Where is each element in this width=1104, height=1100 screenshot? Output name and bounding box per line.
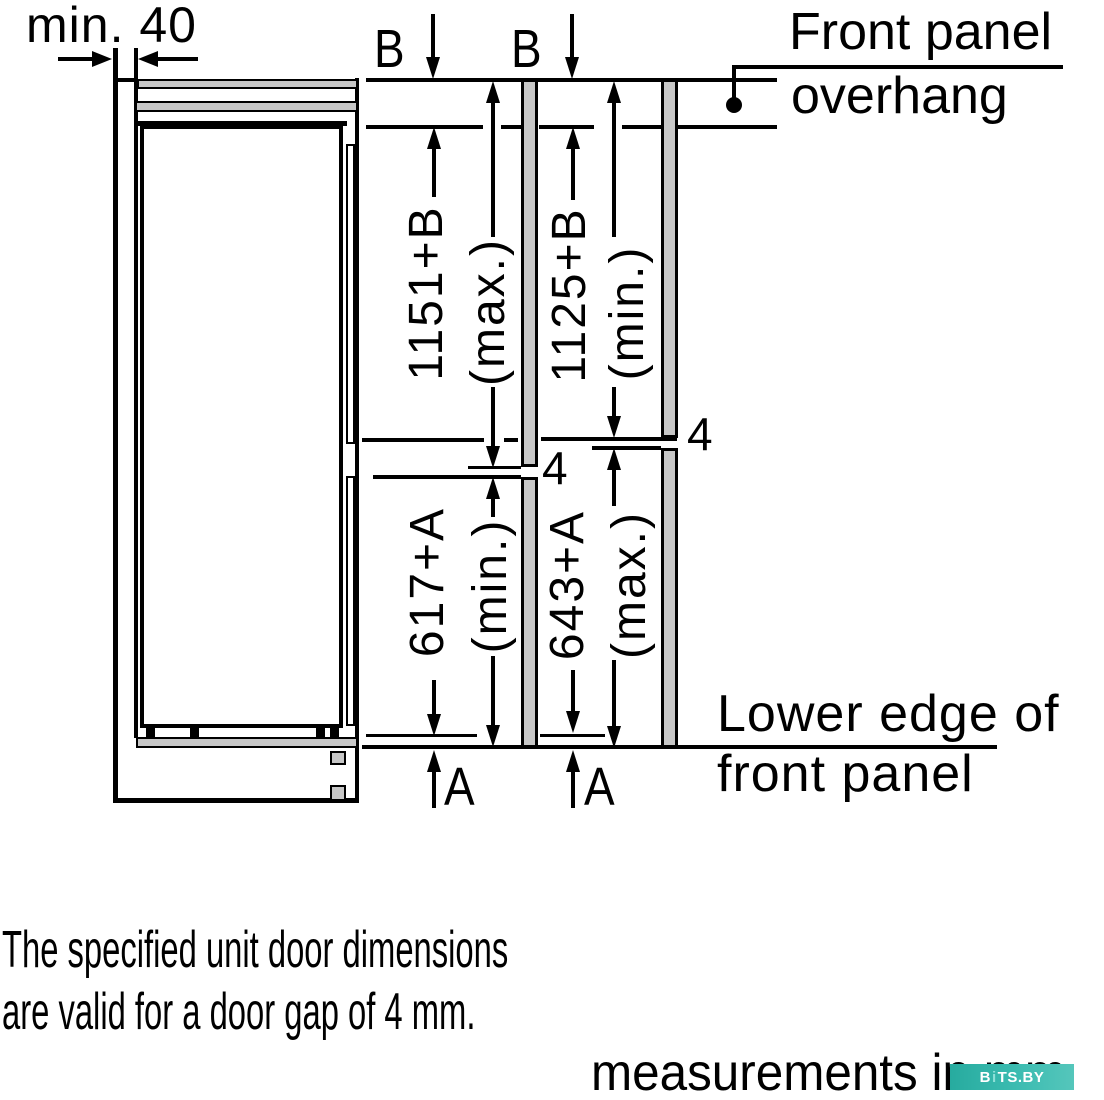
niche-top-line-seg2 <box>501 125 521 129</box>
lower-door-min-value: 617+A <box>404 507 452 657</box>
bottom-vent-grille <box>136 737 358 748</box>
watermark-badge: BiTS.BY <box>950 1064 1074 1090</box>
appliance-door-split-line-seg1 <box>362 438 484 442</box>
lower-door-max-qualifier: (max.) <box>606 511 654 659</box>
min-clearance-arrow-shaft-right <box>158 57 198 61</box>
footnote-line1: The specified unit door dimensions <box>2 924 508 976</box>
watermark-text-part1: B <box>980 1069 991 1086</box>
footnote-line2: are valid for a door gap of 4 mm. <box>2 986 475 1038</box>
door-hinge-strip-lower <box>346 476 355 726</box>
min-clearance-right-arrowhead-icon <box>92 51 112 67</box>
a-arrow-shaft-left <box>432 770 436 808</box>
niche-top-line-seg4 <box>622 125 777 129</box>
dim2-lower-shaft-2 <box>612 660 616 726</box>
appliance-bottom-reference-seg2 <box>540 734 605 737</box>
watermark-text-accent: i <box>991 1069 998 1086</box>
overhang-b-label-left: B <box>374 22 405 76</box>
dim1-inner-down-arrowhead-icon <box>427 714 441 736</box>
b-arrow-shaft-left <box>431 14 435 59</box>
adjustable-foot-lower <box>330 785 346 801</box>
lower-door-min-qualifier: (min.) <box>467 519 515 654</box>
lower-edge-callout-line1: Lower edge of <box>717 688 1060 740</box>
appliance-bottom-reference-seg1 <box>366 734 477 737</box>
dim1-lower-shaft-1 <box>491 497 495 517</box>
min-clearance-arrow-shaft-left <box>58 57 94 61</box>
dim2-inner-down-arrowhead-icon <box>566 711 580 733</box>
dim1-lower-shaft-2 <box>491 656 495 726</box>
appliance-door-front <box>140 125 343 728</box>
dim2-outer-down-arrowhead-icon <box>607 416 621 438</box>
dim2-outer-up-arrowhead-icon <box>607 81 621 103</box>
installation-diagram: min. 40 B B 1151+B 617 <box>0 0 1104 1100</box>
front-panel-right-upper <box>661 79 678 438</box>
cabinet-wall-inner <box>134 48 138 738</box>
cabinet-bottom-edge <box>113 798 359 803</box>
dim1-lower-up-arrowhead-icon <box>486 477 500 499</box>
dim1-outer-up-arrowhead-icon <box>486 81 500 103</box>
lower-door-max-value: 643+A <box>544 510 592 660</box>
cabinet-top-edge <box>113 78 138 82</box>
right-gap-bottom-line <box>592 446 661 450</box>
dim1-inner-up-arrowhead-icon <box>427 127 441 149</box>
watermark-text-part2: TS.BY <box>998 1069 1045 1086</box>
front-panel-left-lower <box>521 477 538 748</box>
upper-door-min-qualifier: (min.) <box>604 246 652 381</box>
overhang-callout-line1: Front panel <box>789 6 1052 58</box>
b-arrowhead-left-icon <box>426 57 440 79</box>
dim1-outer-down-arrowhead-icon <box>486 446 500 468</box>
dim2-lower-down-arrowhead-icon <box>607 726 621 748</box>
dim1-outer-shaft-2 <box>491 387 495 446</box>
door-gap-label-left: 4 <box>542 445 568 491</box>
dim2-inner-up-arrowhead-icon <box>566 127 580 149</box>
upper-door-max-value: 1151+B <box>403 205 451 380</box>
overhang-a-label-left: A <box>444 760 475 814</box>
top-vent-grille-upper <box>137 79 358 89</box>
b-arrow-shaft-right <box>570 14 574 59</box>
min-clearance-left-arrowhead-icon <box>138 51 158 67</box>
a-arrowhead-right-icon <box>566 750 580 772</box>
a-arrow-shaft-right <box>571 770 575 808</box>
dim2-outer-shaft-2 <box>612 387 616 416</box>
door-hinge-strip-upper <box>346 144 355 444</box>
door-gap-label-right: 4 <box>687 411 713 457</box>
dim2-lower-up-arrowhead-icon <box>607 448 621 470</box>
dim2-inner-shaft-bottom <box>571 670 575 711</box>
dim1-inner-shaft-bottom <box>432 680 436 714</box>
b-arrowhead-right-icon <box>565 57 579 79</box>
niche-top-line-seg1 <box>366 125 483 129</box>
dim1-lower-down-arrowhead-icon <box>486 725 500 747</box>
a-arrowhead-left-icon <box>427 750 441 772</box>
overhang-b-label-right: B <box>511 22 542 76</box>
overhang-a-label-right: A <box>584 760 615 814</box>
top-vent-grille-lower <box>135 101 358 112</box>
dim2-inner-shaft-top <box>571 147 575 200</box>
upper-door-min-value: 1125+B <box>546 207 594 382</box>
overhang-callout-dot-icon <box>726 97 742 113</box>
overhang-callout-line2: overhang <box>791 70 1008 122</box>
cabinet-wall-outer <box>113 48 118 803</box>
adjustable-foot-upper <box>330 751 346 765</box>
dim2-lower-shaft-1 <box>612 468 616 506</box>
dim1-outer-shaft-1 <box>491 101 495 237</box>
upper-door-max-qualifier: (max.) <box>465 238 513 386</box>
front-panel-right-lower <box>661 448 678 748</box>
appliance-right-edge <box>355 78 359 803</box>
front-panel-left-upper <box>521 79 538 467</box>
dim1-inner-shaft-top <box>432 147 436 197</box>
min-clearance-label: min. 40 <box>26 0 197 50</box>
appliance-door-split-line-seg2 <box>504 438 518 442</box>
lower-edge-callout-line2: front panel <box>717 748 974 800</box>
dim2-outer-shaft-1 <box>612 101 616 237</box>
